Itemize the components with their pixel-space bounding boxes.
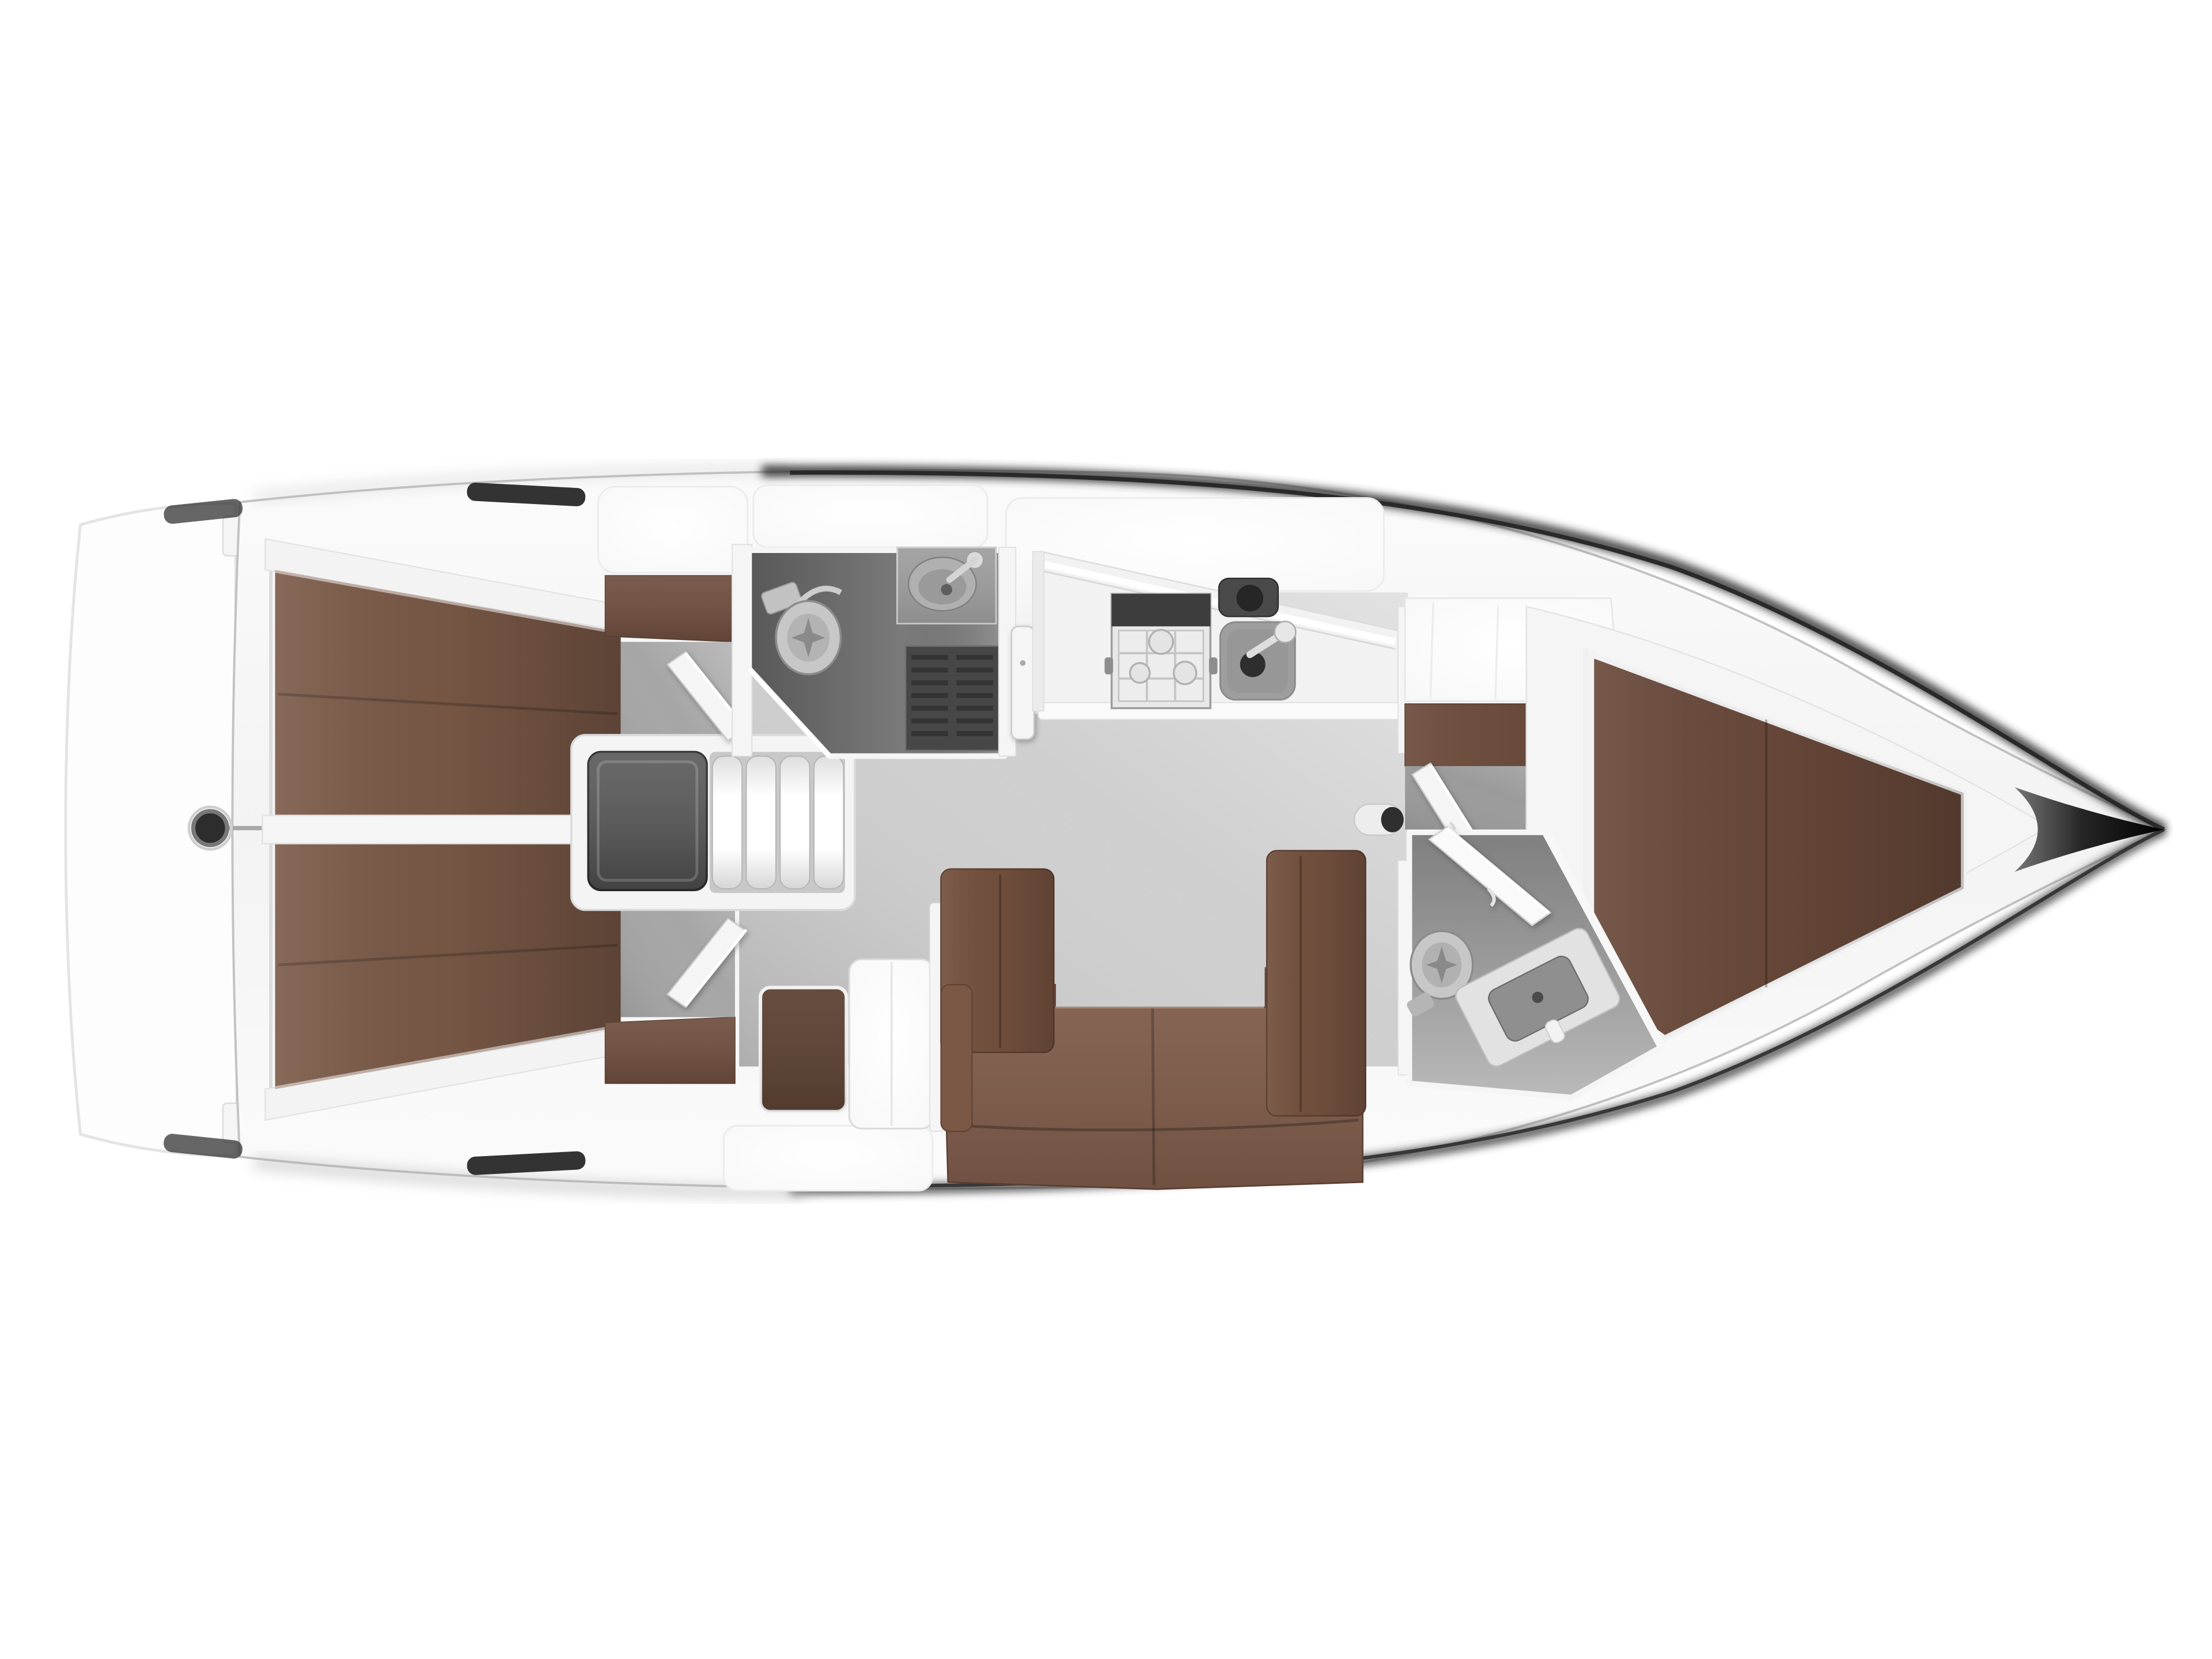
step-tread [713, 756, 742, 889]
floor-plan [0, 0, 2212, 1659]
wet-locker-shading [760, 987, 846, 1112]
aft-head-door [1012, 626, 1034, 739]
backrest-shading [1267, 851, 1365, 1116]
counter-front-fiddle [1038, 703, 1403, 719]
galley-sink-main [1220, 622, 1296, 700]
burner-icon [1174, 662, 1196, 684]
gimbal-pin [1209, 657, 1218, 674]
sink-drain-icon [1237, 585, 1264, 612]
mast-post-core [1381, 807, 1404, 832]
shower-grate [906, 646, 999, 751]
deck-hatch-head [753, 485, 988, 547]
wardrobe-shading [605, 1017, 735, 1084]
washbasin-vanity [897, 547, 996, 623]
burner-icon [1130, 663, 1150, 683]
cushion-seam [1153, 1009, 1154, 1185]
deck-hatch-side [724, 1126, 932, 1191]
basin-drain-icon [941, 584, 952, 596]
settee-armrest [941, 984, 972, 1131]
door-handle [1020, 660, 1026, 666]
companionway [571, 735, 855, 910]
step-tread [747, 756, 776, 889]
faucet-base [1275, 622, 1296, 643]
step-tread [780, 756, 809, 889]
galley-sink-small [1219, 578, 1278, 616]
door-panel [1012, 626, 1034, 739]
cabin-divider-bulkhead [263, 816, 590, 844]
burner-icon [1149, 630, 1173, 654]
deck-hatch-companionway [598, 487, 748, 573]
stove-back-band [1112, 594, 1210, 626]
floor-plan-stage [0, 0, 2212, 1659]
rudder-fitting-icon [194, 811, 228, 845]
engine-shading [588, 752, 707, 890]
gimbal-pin [1105, 657, 1113, 674]
step-tread [814, 756, 843, 889]
stove-icon [1105, 594, 1218, 708]
wardrobe-shading [605, 575, 735, 642]
counter-end-panel [1033, 552, 1044, 711]
